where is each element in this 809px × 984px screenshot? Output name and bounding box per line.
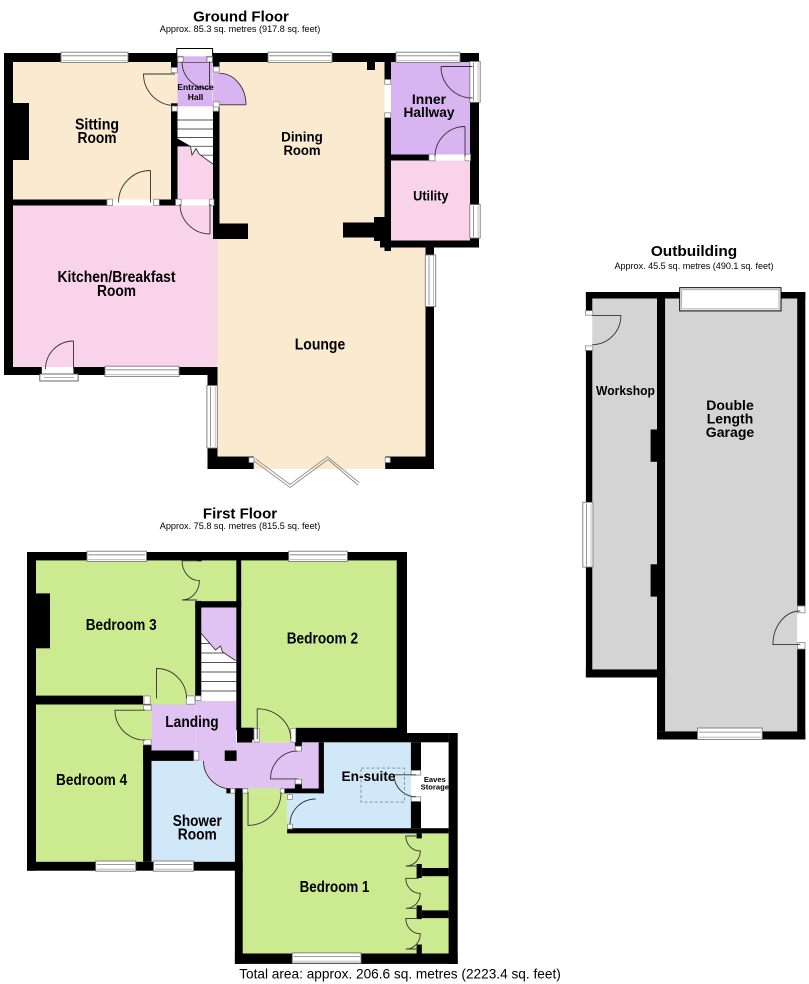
svg-text:Lounge: Lounge — [295, 337, 346, 354]
svg-text:Hall: Hall — [188, 92, 204, 102]
svg-text:Total area: approx. 206.6 sq.: Total area: approx. 206.6 sq. metres (22… — [239, 967, 561, 982]
svg-text:Outbuilding: Outbuilding — [651, 243, 737, 260]
svg-text:Bedroom 2: Bedroom 2 — [287, 631, 358, 648]
svg-text:Approx. 45.5 sq. metres (490.1: Approx. 45.5 sq. metres (490.1 sq. feet) — [615, 261, 774, 271]
svg-text:Approx. 75.8 sq. metres (815.5: Approx. 75.8 sq. metres (815.5 sq. feet) — [160, 521, 321, 531]
svg-text:Utility: Utility — [413, 188, 449, 203]
svg-text:Room: Room — [97, 283, 136, 300]
svg-text:Bedroom 4: Bedroom 4 — [56, 772, 127, 789]
svg-text:Landing: Landing — [165, 714, 218, 731]
svg-text:Ground Floor: Ground Floor — [193, 9, 289, 26]
svg-text:Approx. 85.3 sq. metres (917.8: Approx. 85.3 sq. metres (917.8 sq. feet) — [160, 24, 321, 34]
svg-text:Storage: Storage — [421, 783, 449, 792]
svg-text:Entrance: Entrance — [177, 82, 214, 92]
svg-text:En-suite: En-suite — [342, 769, 396, 784]
svg-text:Hallway: Hallway — [404, 105, 455, 120]
svg-text:Workshop: Workshop — [596, 383, 655, 398]
svg-text:Bedroom 1: Bedroom 1 — [300, 879, 370, 896]
svg-text:Room: Room — [283, 143, 320, 158]
svg-text:Room: Room — [178, 827, 217, 844]
svg-text:Room: Room — [78, 130, 117, 147]
svg-text:Bedroom 3: Bedroom 3 — [86, 617, 157, 634]
svg-text:Garage: Garage — [706, 424, 755, 440]
